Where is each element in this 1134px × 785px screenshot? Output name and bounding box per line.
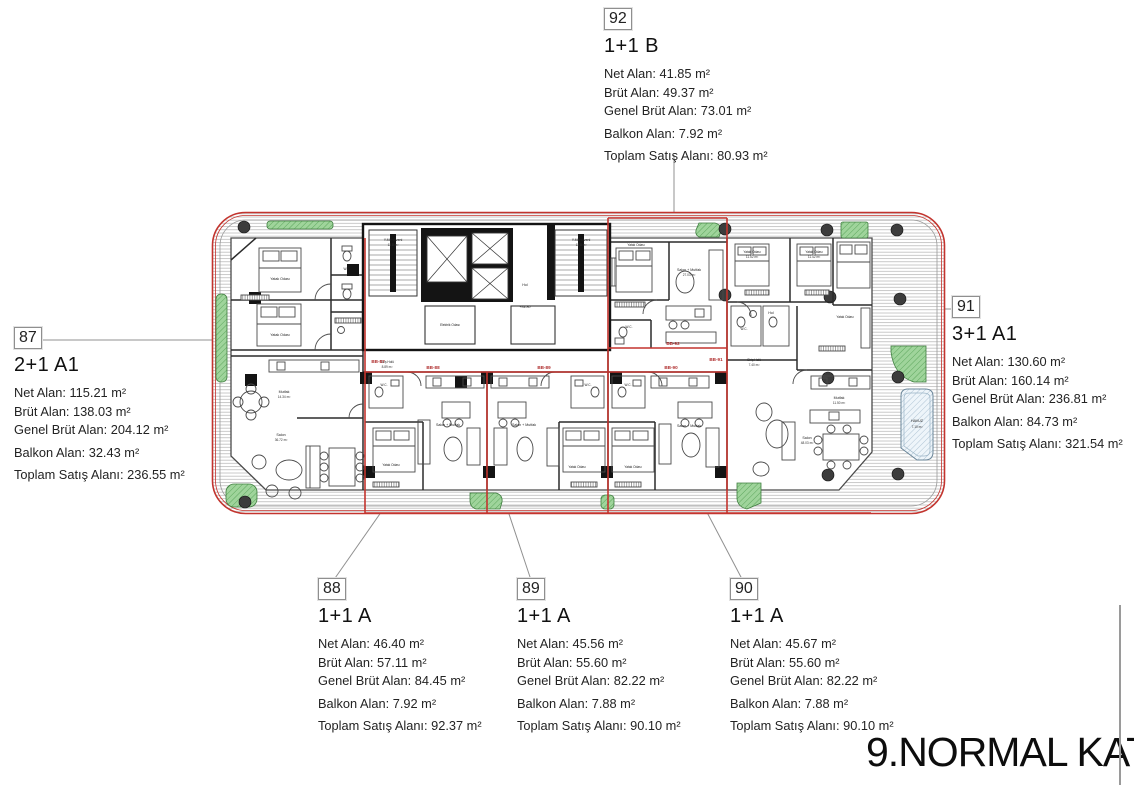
unit-stat: Genel Brüt Alan: 73.01 m² (604, 102, 768, 121)
room-area: 13.8 m² (388, 243, 399, 247)
unit-type-87: 2+1 A1 (14, 354, 185, 377)
unit-tag-92: 92 (604, 8, 632, 30)
unit-tag-87: 87 (14, 327, 42, 349)
stairwell-2 (547, 224, 607, 300)
floor-plan-svg: Y.Merdiveni 13.8 m² Y.Merdiveni 13.8 m² … (211, 210, 949, 520)
unit-stat: Toplam Satış Alanı: 236.55 m² (14, 466, 185, 485)
pool: HAVUZ 7.10 m² (901, 389, 933, 460)
planter (216, 294, 227, 382)
room-label: Salon + Mutfak (677, 424, 701, 428)
room-label: Hol (522, 283, 528, 287)
unit-stat: Brüt Alan: 138.03 m² (14, 403, 185, 422)
pool-area: 7.10 m² (912, 425, 923, 429)
plan-tag-88: BB-88 (426, 365, 440, 370)
planter (470, 493, 502, 509)
room-label: Salon (802, 436, 811, 440)
room-area: 36.72 m² (275, 438, 288, 442)
room-label: W.C. (626, 325, 633, 329)
unit-type-91: 3+1 A1 (952, 323, 1123, 346)
unit-stat: Toplam Satış Alanı: 80.93 m² (604, 147, 768, 166)
unit-stat: Brüt Alan: 55.60 m² (517, 654, 681, 673)
unit-stat: Genel Brüt Alan: 236.81 m² (952, 390, 1123, 409)
unit-stat: Net Alan: 46.40 m² (318, 635, 482, 654)
unit-tag-89: 89 (517, 578, 545, 600)
room-label: Mutfak (279, 390, 290, 394)
floor-plan: Y.Merdiveni 13.8 m² Y.Merdiveni 13.8 m² … (211, 210, 949, 525)
unit-type-89: 1+1 A (517, 605, 681, 628)
unit-stat: Genel Brüt Alan: 82.22 m² (517, 672, 681, 691)
room-label: Y.Merdiveni (384, 238, 403, 242)
unit-stat: Toplam Satış Alanı: 92.37 m² (318, 717, 482, 736)
room-label: Y.Merdiveni (572, 238, 591, 242)
plan-tag-91: BB-91 (709, 357, 723, 362)
unit-stat: Brüt Alan: 55.60 m² (730, 654, 894, 673)
room-label: Giriş Holü (747, 358, 761, 362)
unit-label-88: 88 1+1 A Net Alan: 46.40 m² Brüt Alan: 5… (318, 578, 482, 736)
unit-tag-88: 88 (318, 578, 346, 600)
planter (267, 221, 333, 229)
room-label: Yatak Odası (836, 315, 853, 319)
room-label: Mutfak (834, 396, 845, 400)
unit-label-92: 92 1+1 B Net Alan: 41.85 m² Brüt Alan: 4… (604, 8, 768, 166)
sheet: Y.Merdiveni 13.8 m² Y.Merdiveni 13.8 m² … (0, 0, 1134, 785)
room-area: 8.89 m² (382, 365, 393, 369)
unit-label-87: 87 2+1 A1 Net Alan: 115.21 m² Brüt Alan:… (14, 327, 185, 485)
room-label: Salon + Mutfak (512, 423, 536, 427)
unit-stat: Balkon Alan: 7.92 m² (604, 125, 768, 144)
room-area: 7.40 m² (749, 363, 760, 367)
plan-tag-90: BB-90 (664, 365, 678, 370)
floor-title: 9.NORMAL KAT (866, 729, 1134, 776)
room-area: 13.8 m² (576, 243, 587, 247)
room-label: Elektrik Odası (440, 323, 460, 327)
unit-stat: Toplam Satış Alanı: 90.10 m² (517, 717, 681, 736)
unit-stat: Net Alan: 45.67 m² (730, 635, 894, 654)
unit-stat: Genel Brüt Alan: 82.22 m² (730, 672, 894, 691)
unit-stat: Brüt Alan: 160.14 m² (952, 372, 1123, 391)
unit-stat: Net Alan: 115.21 m² (14, 384, 185, 403)
room-label: Yatak Odası (382, 463, 399, 467)
unit-label-90: 90 1+1 A Net Alan: 45.67 m² Brüt Alan: 5… (730, 578, 894, 736)
room-area: 48.03 m² (801, 441, 814, 445)
room-label: Yatak Odası (624, 465, 641, 469)
unit-stat: Brüt Alan: 57.11 m² (318, 654, 482, 673)
room-label: Yatak Odası (627, 243, 644, 247)
unit-type-90: 1+1 A (730, 605, 894, 628)
unit-tag-91: 91 (952, 296, 980, 318)
unit-stat: Toplam Satış Alanı: 321.54 m² (952, 435, 1123, 454)
room-label: Yatak Odası (568, 465, 585, 469)
unit-stat: Balkon Alan: 7.92 m² (318, 695, 482, 714)
planter (841, 222, 868, 238)
plan-tag-92: BB-92 (666, 341, 680, 346)
pool-label: HAVUZ (911, 419, 924, 423)
unit-tag-90: 90 (730, 578, 758, 600)
service-room (511, 306, 555, 344)
room-area: 27.03 m² (683, 273, 696, 277)
unit-stat: Genel Brüt Alan: 84.45 m² (318, 672, 482, 691)
room-label: Salon (276, 433, 285, 437)
core: Y.Merdiveni 13.8 m² Y.Merdiveni 13.8 m² … (363, 224, 610, 350)
unit-stat: Brüt Alan: 49.37 m² (604, 84, 768, 103)
room-label: Yatak Odası (270, 333, 290, 337)
sheet-frame-line (1119, 605, 1121, 785)
room-label: W.C. (625, 383, 632, 387)
level-mark: +34.80 (519, 305, 530, 309)
room-label: W.C. (381, 383, 388, 387)
room-label: Yatak Odası (743, 250, 760, 254)
room-label: Yatak Odası (805, 250, 822, 254)
unit-stat: Net Alan: 130.60 m² (952, 353, 1123, 372)
room-area: 11.42 m² (808, 255, 820, 259)
unit-type-88: 1+1 A (318, 605, 482, 628)
plan-tag-89: BB-89 (537, 365, 551, 370)
room-area: 11.50 m² (833, 401, 845, 405)
room-label: Hol (768, 311, 774, 315)
plan-tag-87: BB-87 (371, 359, 385, 364)
room-label: Salon + Mutfak (677, 268, 701, 272)
room-label: Yatak Odası (270, 277, 290, 281)
unit-stat: Balkon Alan: 7.88 m² (730, 695, 894, 714)
unit-label-89: 89 1+1 A Net Alan: 45.56 m² Brüt Alan: 5… (517, 578, 681, 736)
unit-stat: Balkon Alan: 84.73 m² (952, 413, 1123, 432)
room-label: W.C. (585, 383, 592, 387)
room-label: Salon + Mutfak (436, 423, 460, 427)
room-label: W.C. (741, 327, 748, 331)
planter (696, 223, 721, 237)
elevator-bank (421, 228, 513, 302)
unit-stat: Balkon Alan: 7.88 m² (517, 695, 681, 714)
unit-stat: Net Alan: 45.56 m² (517, 635, 681, 654)
room-label: W.C. (344, 267, 351, 271)
unit-type-92: 1+1 B (604, 35, 768, 58)
room-area: 11.52 m² (746, 255, 758, 259)
unit-stat: Balkon Alan: 32.43 m² (14, 444, 185, 463)
unit-label-91: 91 3+1 A1 Net Alan: 130.60 m² Brüt Alan:… (952, 296, 1123, 454)
unit-stat: Net Alan: 41.85 m² (604, 65, 768, 84)
unit-stat: Genel Brüt Alan: 204.12 m² (14, 421, 185, 440)
room-area: 14.34 m² (278, 395, 291, 399)
